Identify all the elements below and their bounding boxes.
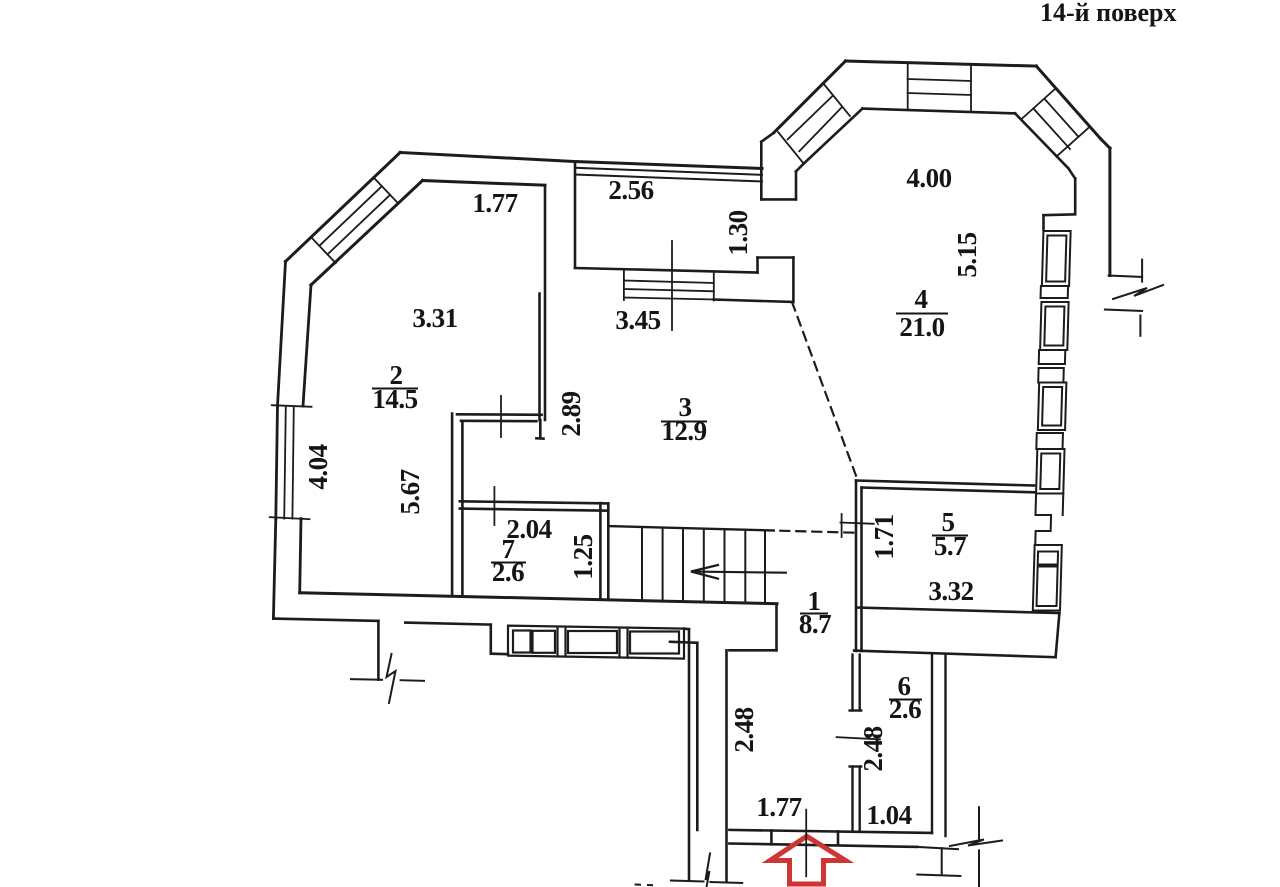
svg-text:1.30: 1.30 <box>723 210 753 255</box>
svg-text:2.56: 2.56 <box>608 175 653 205</box>
svg-text:1.04: 1.04 <box>866 800 911 830</box>
svg-text:2.48: 2.48 <box>858 726 888 771</box>
svg-text:1.77: 1.77 <box>756 792 801 822</box>
svg-text:5.67: 5.67 <box>395 469 425 514</box>
svg-text:4.00: 4.00 <box>906 163 951 193</box>
svg-text:4.04: 4.04 <box>303 444 333 489</box>
svg-text:1.77: 1.77 <box>472 188 517 218</box>
svg-text:1.71: 1.71 <box>869 514 899 559</box>
svg-text:2.48: 2.48 <box>729 707 759 752</box>
svg-text:1.25: 1.25 <box>568 534 598 579</box>
svg-text:4: 4 <box>915 284 928 314</box>
svg-text:3.32: 3.32 <box>928 576 973 606</box>
svg-text:3.31: 3.31 <box>412 303 457 333</box>
svg-text:21.0: 21.0 <box>899 312 944 342</box>
svg-text:2.04: 2.04 <box>506 514 551 544</box>
svg-text:3.45: 3.45 <box>615 305 660 335</box>
svg-text:5.15: 5.15 <box>952 232 982 277</box>
svg-text:2.89: 2.89 <box>556 391 586 436</box>
svg-text:14-й поверх: 14-й поверх <box>1040 0 1177 27</box>
